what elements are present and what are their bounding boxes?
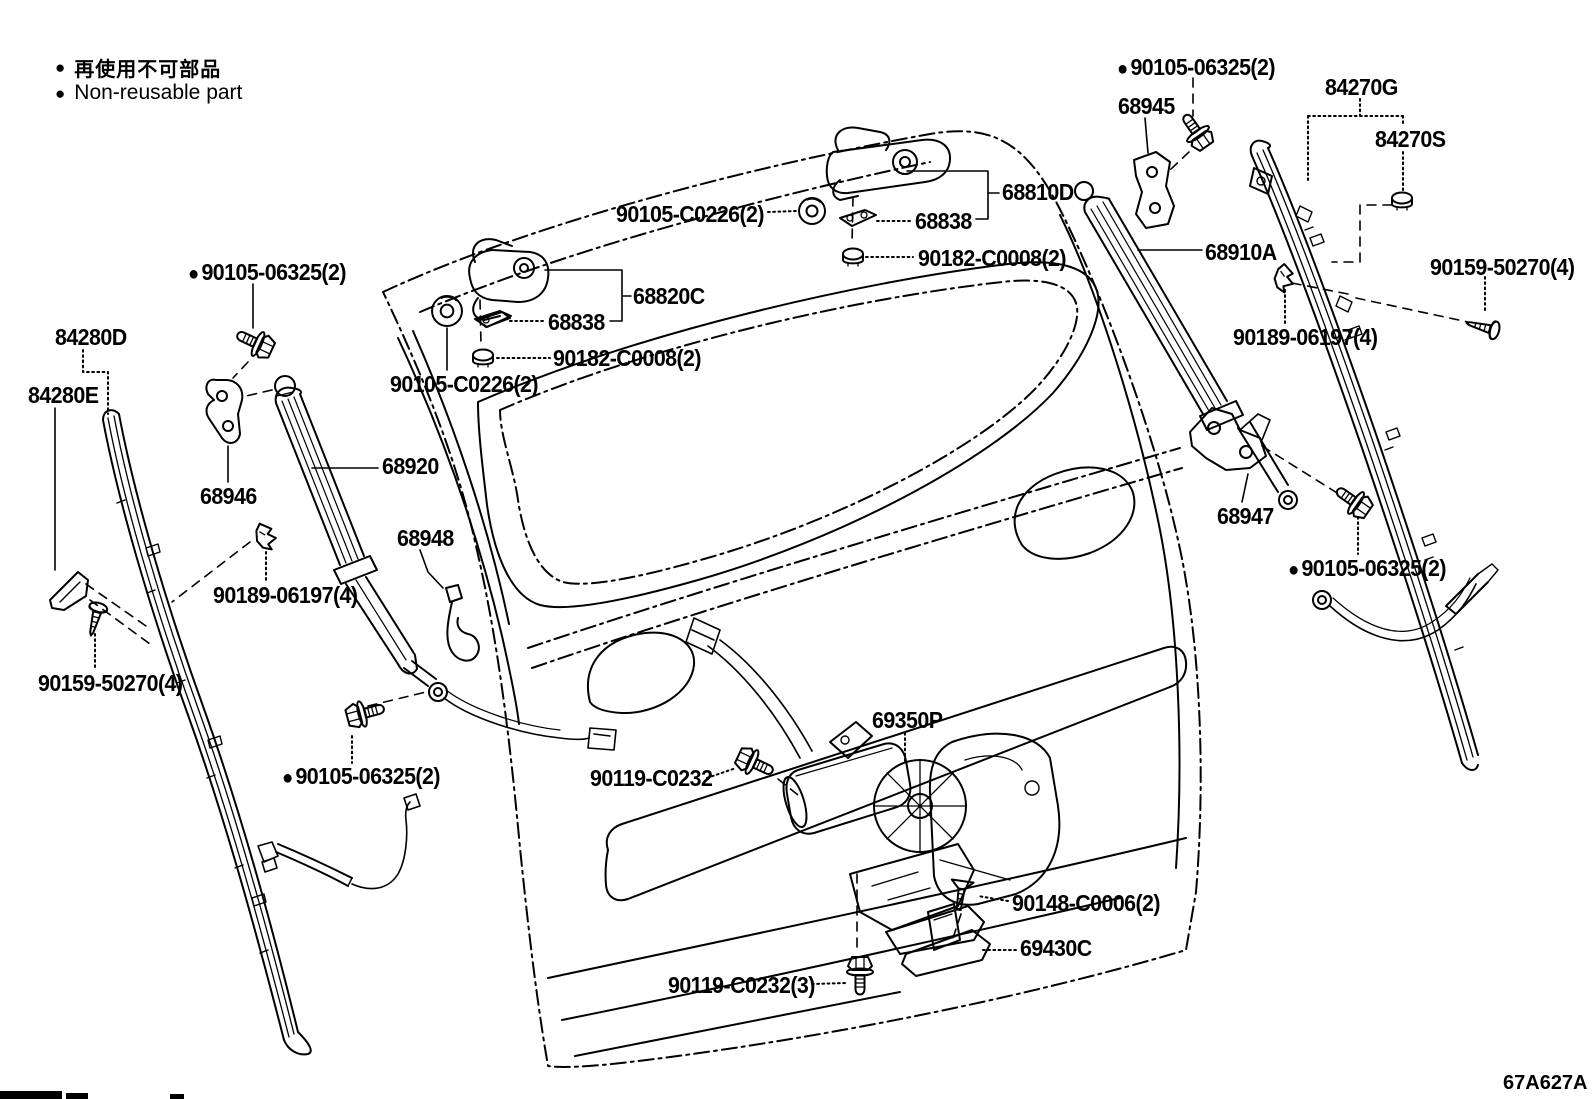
part-label-90148-C0006: 90148-C0006(2)	[1012, 892, 1160, 915]
parts-diagram-page: ● 再使用不可部品 ● Non-reusable part ●90105-063…	[0, 0, 1592, 1099]
part-number-text: 90159-50270(4)	[38, 670, 182, 696]
legend-text-en: Non-reusable part	[74, 81, 242, 105]
part-number-text: 90105-06325(2)	[1301, 555, 1445, 581]
part-number-text: 90105-06325(2)	[201, 259, 345, 285]
part-number-text: 90105-C0226(2)	[390, 371, 538, 397]
part-label-68920: 68920	[382, 455, 439, 478]
part-number-text: 68945	[1118, 93, 1175, 119]
legend-text-jp: 再使用不可部品	[74, 53, 221, 82]
part-label-90105-06325-top-right: ●90105-06325(2)	[1117, 56, 1275, 79]
part-number-text: 90119-C0232	[590, 765, 712, 791]
part-number-text: 84270G	[1325, 74, 1398, 100]
non-reusable-bullet-icon: ●	[1288, 559, 1299, 581]
part-label-90189-06197-left: 90189-06197(4)	[213, 584, 357, 607]
part-number-text: 90148-C0006(2)	[1012, 890, 1160, 916]
part-label-90182-C0008-right: 90182-C0008(2)	[918, 247, 1066, 270]
part-number-text: 68920	[382, 453, 439, 479]
wiring-harness-left	[258, 794, 420, 889]
legend: ● 再使用不可部品 ● Non-reusable part	[55, 54, 242, 106]
part-label-68947: 68947	[1217, 505, 1274, 528]
part-number-text: 90189-06197(4)	[1233, 324, 1377, 350]
part-label-90119-C0232: 90119-C0232	[590, 767, 712, 790]
part-label-68810D: 68810D	[1002, 181, 1074, 204]
part-number-text: 69430C	[1020, 935, 1092, 961]
part-number-text: 84280D	[55, 324, 127, 350]
non-reusable-bullet-icon: ●	[55, 85, 65, 102]
hinge-bracket-68945	[1134, 152, 1174, 228]
clip-hook-68948	[446, 585, 479, 661]
part-label-90189-06197-right: 90189-06197(4)	[1233, 326, 1377, 349]
part-number-text: 90159-50270(4)	[1430, 254, 1574, 280]
parts-diagram-drawing	[0, 0, 1592, 1099]
part-label-90119-C0232-3: 90119-C0232(3)	[668, 974, 815, 997]
part-label-90159-50270-left: 90159-50270(4)	[38, 672, 182, 695]
moulding-end-piece-84280E	[50, 572, 88, 610]
hinge-left-68820C	[469, 239, 548, 327]
part-label-90105-06325-right: ●90105-06325(2)	[1288, 557, 1446, 580]
hinge-right-68810D	[827, 127, 950, 200]
part-label-84280E: 84280E	[28, 384, 98, 407]
part-label-68946: 68946	[200, 485, 257, 508]
part-label-68910A: 68910A	[1205, 241, 1277, 264]
part-label-68838-right: 68838	[915, 210, 972, 233]
part-number-text: 68946	[200, 483, 257, 509]
part-label-90105-C0226-left: 90105-C0226(2)	[390, 373, 538, 396]
part-label-84280D: 84280D	[55, 326, 127, 349]
part-label-69350P: 69350P	[872, 709, 942, 732]
part-label-69430C: 69430C	[1020, 937, 1092, 960]
diagram-code: 67A627A	[1503, 1072, 1588, 1095]
non-reusable-bullet-icon: ●	[188, 263, 199, 285]
part-label-90105-06325-left: ●90105-06325(2)	[188, 261, 346, 284]
legend-row-jp: ● 再使用不可部品	[55, 54, 242, 80]
non-reusable-bullet-icon: ●	[1117, 58, 1128, 80]
part-label-68820C: 68820C	[633, 285, 705, 308]
part-number-text: 84270S	[1375, 126, 1445, 152]
part-number-text: 68948	[397, 525, 454, 551]
part-number-text: 68910A	[1205, 239, 1277, 265]
part-number-text: 90182-C0008(2)	[918, 245, 1066, 271]
part-label-68838-left: 68838	[548, 311, 605, 334]
part-label-90159-50270-right: 90159-50270(4)	[1430, 256, 1574, 279]
moulding-back-door-right	[1250, 141, 1478, 770]
page-edge-marks	[0, 1091, 184, 1099]
part-number-text: 68810D	[1002, 179, 1074, 205]
non-reusable-bullet-icon: ●	[282, 767, 293, 789]
part-number-text: 68838	[915, 208, 972, 234]
part-label-84270G: 84270G	[1325, 76, 1398, 99]
part-number-text: 84280E	[28, 382, 98, 408]
part-label-90182-C0008-left: 90182-C0008(2)	[553, 347, 701, 370]
part-label-68948: 68948	[397, 527, 454, 550]
part-label-68945: 68945	[1118, 95, 1175, 118]
part-number-text: 68820C	[633, 283, 705, 309]
part-number-text: 68947	[1217, 503, 1274, 529]
part-number-text: 69350P	[872, 707, 942, 733]
part-label-90105-06325-bottom-left: ●90105-06325(2)	[282, 765, 440, 788]
part-label-84270S: 84270S	[1375, 128, 1445, 151]
part-number-text: 90119-C0232(3)	[668, 972, 815, 998]
part-number-text: 90105-06325(2)	[295, 763, 439, 789]
tailgate-inner-panel	[398, 215, 1186, 1056]
part-number-text: 90105-C0226(2)	[616, 201, 764, 227]
legend-row-en: ● Non-reusable part	[55, 80, 242, 106]
part-number-text: 90182-C0008(2)	[553, 345, 701, 371]
non-reusable-bullet-icon: ●	[55, 59, 65, 76]
part-number-text: 90105-06325(2)	[1130, 54, 1274, 80]
gas-strut-left-68920	[275, 376, 589, 740]
part-number-text: 90189-06197(4)	[213, 582, 357, 608]
part-number-text: 68838	[548, 309, 605, 335]
part-label-90105-C0226-right: 90105-C0226(2)	[616, 203, 764, 226]
hinge-bracket-68946	[206, 380, 242, 443]
fasteners	[82, 108, 1501, 994]
